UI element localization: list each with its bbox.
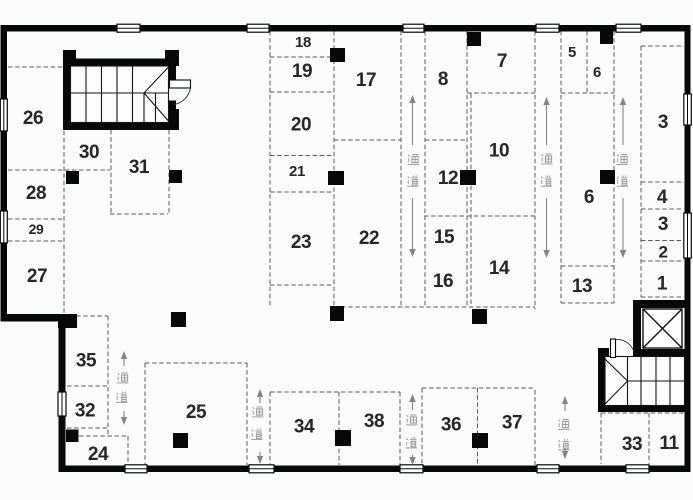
svg-text:24: 24: [88, 444, 109, 465]
svg-text:27: 27: [27, 266, 47, 287]
svg-text:18: 18: [295, 34, 311, 51]
svg-text:33: 33: [622, 434, 642, 455]
svg-text:8: 8: [438, 69, 448, 90]
svg-text:31: 31: [129, 157, 150, 178]
svg-text:28: 28: [26, 183, 46, 204]
svg-text:23: 23: [291, 232, 311, 253]
svg-text:21: 21: [289, 163, 305, 180]
svg-text:32: 32: [75, 401, 95, 422]
svg-text:30: 30: [79, 142, 99, 163]
svg-text:2: 2: [658, 243, 667, 262]
svg-text:37: 37: [502, 413, 522, 434]
svg-text:22: 22: [359, 228, 379, 249]
svg-text:26: 26: [23, 108, 43, 129]
svg-text:6: 6: [584, 187, 594, 208]
svg-text:12: 12: [438, 168, 458, 189]
svg-text:1: 1: [657, 274, 668, 295]
svg-text:36: 36: [441, 415, 461, 436]
svg-text:35: 35: [76, 351, 97, 372]
svg-text:34: 34: [294, 417, 315, 438]
svg-text:7: 7: [497, 51, 507, 72]
svg-text:5: 5: [568, 44, 576, 61]
svg-text:13: 13: [572, 276, 592, 297]
svg-text:15: 15: [434, 227, 455, 248]
svg-text:10: 10: [489, 141, 509, 162]
svg-text:25: 25: [186, 402, 207, 423]
svg-text:19: 19: [292, 61, 312, 82]
svg-text:17: 17: [356, 70, 376, 91]
svg-text:3: 3: [658, 214, 668, 235]
svg-text:20: 20: [291, 115, 311, 136]
svg-text:14: 14: [489, 258, 510, 279]
svg-text:38: 38: [364, 411, 384, 432]
svg-text:16: 16: [433, 271, 453, 292]
svg-text:11: 11: [659, 433, 679, 454]
svg-text:6: 6: [593, 64, 601, 81]
svg-text:4: 4: [657, 187, 668, 208]
svg-text:29: 29: [29, 221, 44, 237]
svg-text:3: 3: [658, 112, 668, 133]
